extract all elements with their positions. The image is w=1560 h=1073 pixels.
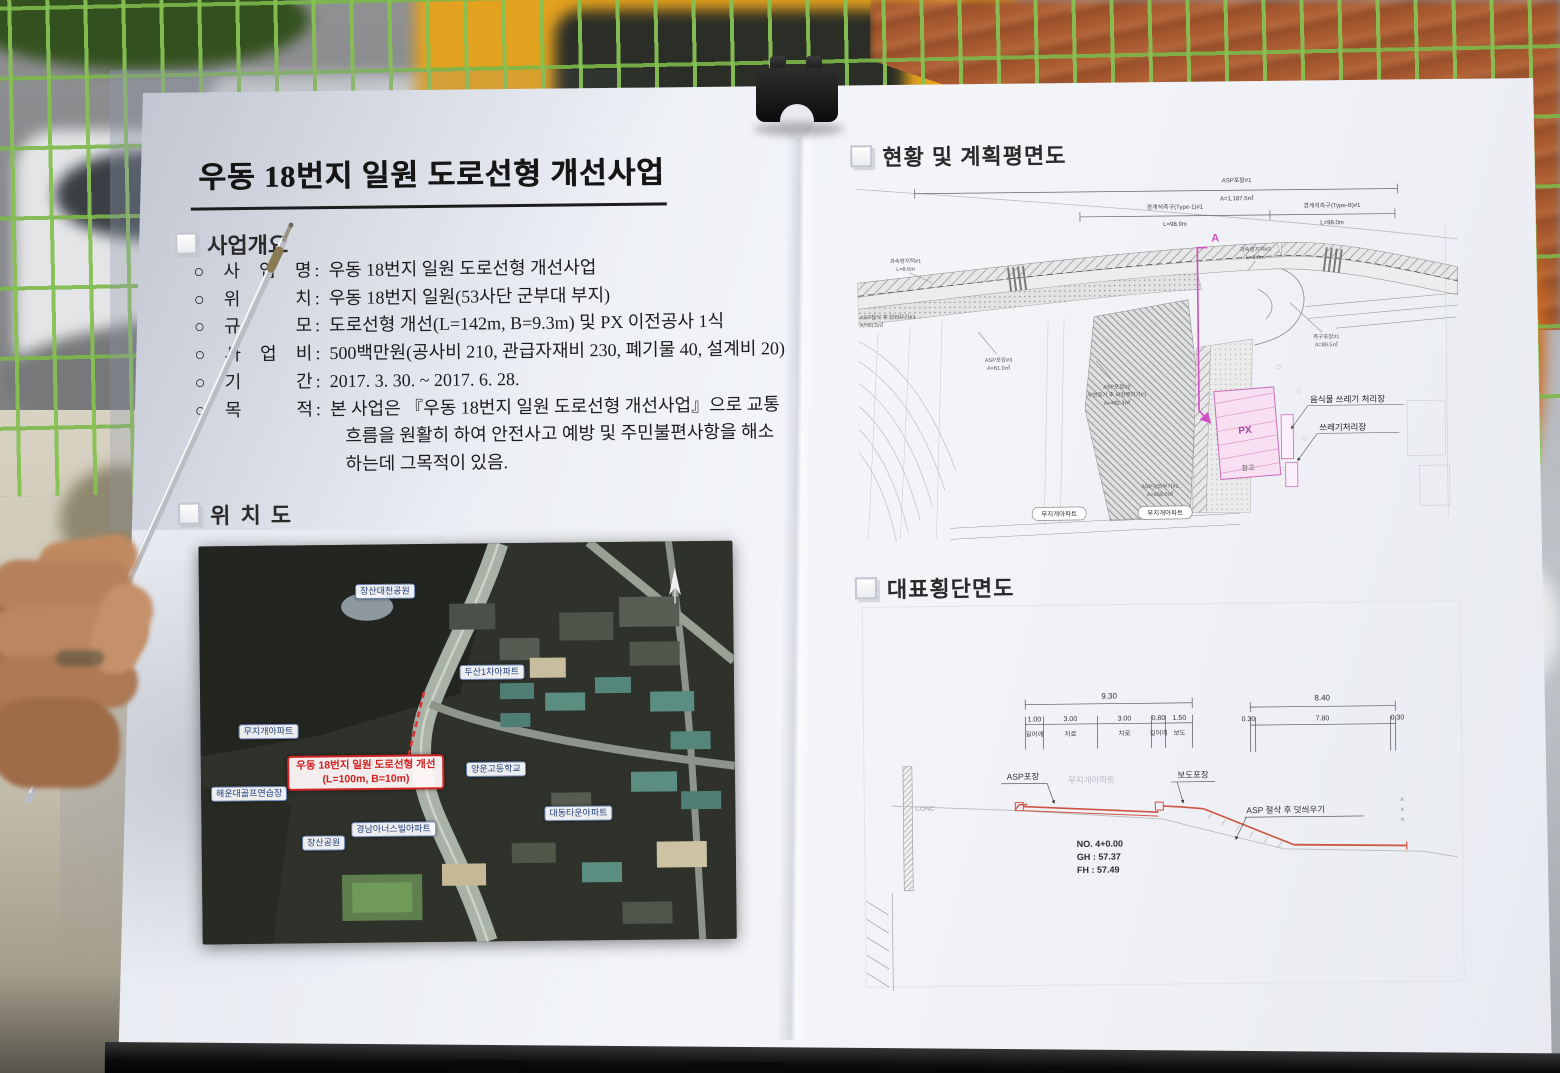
item-separator: :: [311, 257, 328, 285]
satellite-location-map: 장산대천공원 두산1차아파트 무지개아파트 해운대골프연습장 양운고등학교 경남…: [198, 541, 736, 945]
svg-text:차로: 차로: [1065, 729, 1077, 738]
warehouse-label: 창고: [1241, 464, 1255, 473]
map-label: 장산공원: [302, 835, 345, 851]
item-separator: :: [313, 396, 330, 424]
svg-text:FH : 57.49: FH : 57.49: [1077, 865, 1120, 875]
overlay-label: ASP 절삭 후 덧씌우기: [1235, 804, 1363, 839]
map-label: 대동타운아파트: [544, 805, 612, 821]
svg-text:무지개아파트: 무지개아파트: [1041, 509, 1077, 518]
slope-hatch: [1207, 813, 1281, 849]
bullet-icon: ○: [195, 397, 225, 425]
checkbox-icon: [178, 502, 200, 524]
section-marker-label: A: [1211, 232, 1219, 244]
item-label: 위 치: [224, 285, 312, 314]
svg-text:A=89.5㎡: A=89.5㎡: [1315, 340, 1339, 348]
asp-label: ASP포장: [1001, 771, 1054, 804]
proposed-profile: [1015, 798, 1407, 853]
svg-text:✕: ✕: [1400, 817, 1405, 823]
sidewalk-label: 보도포장: [1171, 770, 1215, 803]
clamp-shadow: [754, 122, 844, 136]
map-label: 장산대천공원: [355, 584, 415, 600]
dim-segments: 0.30 7.80 0.30: [1242, 714, 1405, 723]
svg-text:ASP포장#3: ASP포장#3: [985, 357, 1012, 364]
svg-text:과속방지턱#1: 과속방지턱#1: [890, 257, 922, 265]
easel-leg: [689, 1062, 787, 1073]
svg-text:1.50: 1.50: [1173, 715, 1187, 722]
svg-text:1.00: 1.00: [1028, 716, 1042, 723]
svg-text:측구포장#1: 측구포장#1: [1313, 332, 1339, 340]
svg-text:A=482.3㎡: A=482.3㎡: [1104, 398, 1131, 406]
checkbox-icon: [175, 233, 197, 255]
map-highlight-label: 우동 18번지 일원 도로선형 개선 (L=100m, B=10m): [287, 754, 445, 791]
waste-label: 쓰레기처리장: [1297, 422, 1399, 461]
list-item: ○목 적:본 사업은 『우동 18번지 일원 도로선형 개선사업』으로 교통 흐…: [195, 391, 781, 480]
plan-note: A=1,187.5㎡: [1220, 194, 1254, 202]
item-label: 사 업 명: [223, 257, 311, 286]
map-label: 해운대골프연습장: [211, 786, 287, 802]
dim-segment-names: 길어깨 차로 차로 길어깨 보도: [1026, 728, 1186, 739]
svg-text:L=8.0m: L=8.0m: [896, 267, 915, 273]
svg-text:길어깨: 길어깨: [1150, 728, 1168, 737]
existing-ground-line: [891, 800, 1458, 863]
svg-text:차로: 차로: [1119, 728, 1131, 737]
svg-text:보도: 보도: [1174, 729, 1186, 737]
svg-text:NO. 4+0.00: NO. 4+0.00: [1077, 839, 1123, 850]
bullet-icon: ○: [194, 314, 224, 342]
map-label: 양운고등학교: [466, 761, 526, 777]
item-label: 규 모: [224, 313, 312, 342]
title-underline: [191, 202, 667, 210]
svg-text:음식물 쓰레기 처리장: 음식물 쓰레기 처리장: [1310, 394, 1385, 405]
retaining-wall: [903, 767, 913, 891]
item-label: 기 간: [225, 368, 313, 397]
svg-text:✕: ✕: [1400, 807, 1405, 813]
left-frame-hatch: [866, 893, 893, 991]
item-value: 500백만원(공사비 210, 관급자재비 230, 폐기물 40, 설계비 2…: [329, 338, 785, 363]
lot-lines: [866, 319, 1066, 539]
plan-note: ASP포장#1: [1222, 176, 1252, 184]
item-separator: :: [312, 312, 329, 340]
apartment-label-pill: 무지개아파트: [1138, 506, 1192, 520]
svg-text:3.00: 3.00: [1118, 715, 1132, 722]
px-label: PX: [1238, 425, 1253, 437]
dimension-lines-right: [1250, 701, 1396, 753]
location-map-heading: 위 치 도: [210, 497, 293, 530]
map-label: 두산1차아파트: [459, 664, 524, 680]
svg-text:0.30: 0.30: [1391, 714, 1405, 721]
item-value: 우동 18번지 일원(53사단 군부대 부지): [329, 285, 610, 308]
cross-section-drawing: 9.30 1.00 3.00 3.00 0.80 1.50 길어깨 차로 차로 …: [861, 595, 1467, 993]
svg-text:0.30: 0.30: [1242, 716, 1256, 723]
svg-text:쓰레기처리장: 쓰레기처리장: [1319, 422, 1366, 433]
item-separator: :: [313, 368, 330, 396]
dim-total: 9.30: [1101, 692, 1117, 701]
apartment-ghost-label: 무지개아파트: [1068, 775, 1115, 786]
checkbox-icon: [850, 145, 872, 167]
dim-total: 8.40: [1314, 693, 1330, 702]
plan-note: 경계석측구(Type-1)#1: [1146, 203, 1203, 212]
station-text: NO. 4+0.00 GH : 57.37 FH : 57.49: [1077, 839, 1124, 875]
plan-note: 경계석측구(Type-B)#1: [1303, 201, 1361, 210]
svg-text:GH : 57.37: GH : 57.37: [1077, 852, 1121, 862]
dim-segments: 1.00 3.00 3.00 0.80 1.50: [1028, 715, 1187, 724]
map-label: 무지개아파트: [239, 724, 299, 740]
photo-of-project-board: 우동 18번지 일원 도로선형 개선사업 사업개요 ○사 업 명:우동 18번지…: [0, 0, 1560, 1073]
item-separator: :: [312, 340, 329, 368]
apartment-label-pill: 무지개아파트: [1032, 507, 1086, 521]
plan-note: L=98.9m: [1163, 222, 1187, 228]
svg-text:ASP포장#2: ASP포장#2: [1103, 383, 1130, 390]
dimension-lines-left: [1025, 698, 1193, 750]
satellite-imagery: [198, 541, 736, 945]
svg-text:✕: ✕: [1400, 797, 1405, 803]
svg-text:무지개아파트: 무지개아파트: [1147, 508, 1183, 517]
svg-text:ASP 절삭 후 덧씌우기: ASP 절삭 후 덧씌우기: [1246, 804, 1325, 815]
plan-heading: 현황 및 계획평면도: [882, 138, 1066, 172]
x-marks: ✕✕✕: [1400, 797, 1405, 823]
item-value: 우동 18번지 일원 도로선형 개선사업: [328, 257, 596, 280]
item-value: 본 사업은 『우동 18번지 일원 도로선형 개선사업』으로 교통: [330, 394, 780, 419]
existing-buildings: [1272, 363, 1451, 507]
svg-text:7.80: 7.80: [1316, 715, 1330, 722]
plan-note: L=98.0m: [1320, 220, 1344, 226]
item-value-continuation: 흐름을 원활히 하여 안전사고 예방 및 주민불편사항을 해소: [345, 418, 780, 450]
bullet-icon: ○: [194, 286, 224, 314]
svg-text:L=8.0m: L=8.0m: [1246, 255, 1265, 261]
bullet-icon: ○: [193, 258, 223, 286]
overview-list: ○사 업 명:우동 18번지 일원 도로선형 개선사업 ○위 치:우동 18번지…: [193, 252, 780, 480]
bullet-icon: ○: [195, 369, 225, 397]
svg-text:보도포장: 보도포장: [1177, 770, 1209, 780]
highlight-line2: (L=100m, B=10m): [296, 772, 435, 787]
bullet-icon: ○: [194, 341, 224, 369]
svg-text:ASP포장: ASP포장: [1007, 771, 1040, 781]
board-clamp: [756, 56, 844, 136]
svg-text:A=94.0㎡: A=94.0㎡: [860, 321, 884, 329]
page-title: 우동 18번지 일원 도로선형 개선사업: [164, 147, 698, 197]
svg-text:길어깨: 길어깨: [1026, 729, 1044, 738]
item-value: 2017. 3. 30. ~ 2017. 6. 28.: [330, 369, 520, 391]
item-value-continuation: 하는데 그목적이 있음.: [345, 446, 780, 478]
plan-drawing: ASP포장#1 A=1,187.5㎡ 경계석측구(Type-1)#1 L=98.…: [856, 165, 1462, 543]
item-label: 사 업 비: [224, 340, 312, 369]
checkbox-icon: [855, 577, 877, 599]
item-label: 목 적: [225, 396, 313, 425]
overview-heading: 사업개요: [207, 228, 288, 261]
item-value: 도로선형 개선(L=142m, B=9.3m) 및 PX 이전공사 1식: [329, 311, 724, 335]
svg-text:A=81.0㎡: A=81.0㎡: [987, 364, 1011, 372]
svg-text:3.00: 3.00: [1064, 716, 1078, 723]
item-separator: :: [312, 285, 329, 313]
map-label: 경남아너스빌아파트: [351, 821, 436, 837]
px-building: PX 창고: [1214, 387, 1281, 480]
highlight-line1: 우동 18번지 일원 도로선형 개선: [296, 758, 435, 773]
easel-leg: [448, 1060, 522, 1073]
svg-text:0.80: 0.80: [1152, 715, 1166, 722]
